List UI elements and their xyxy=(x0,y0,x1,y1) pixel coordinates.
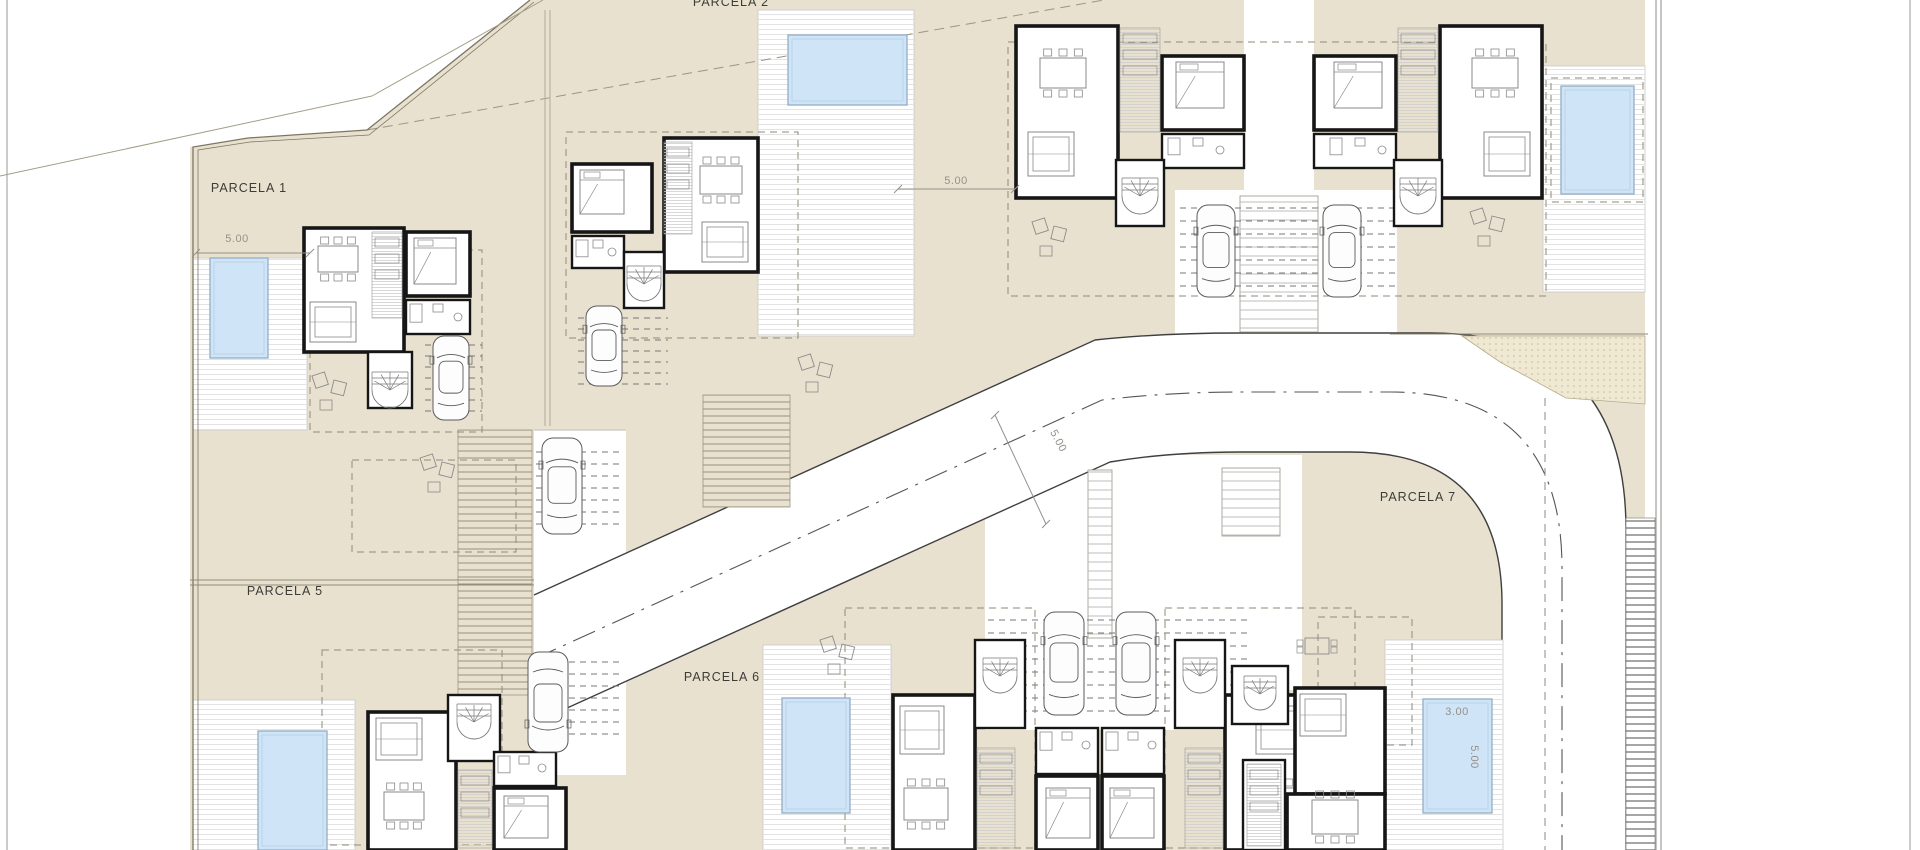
courtyard-top-right xyxy=(1244,0,1314,196)
car-8 xyxy=(1113,612,1159,715)
site-plan-sheet: PARCELA 1PARCELA 2PARCELA 5PARCELA 6PARC… xyxy=(0,0,1920,850)
car-3 xyxy=(1194,205,1238,297)
pool-top-right xyxy=(1561,86,1634,194)
car-1 xyxy=(430,336,472,420)
car-2 xyxy=(583,306,625,386)
site-plan-canvas xyxy=(0,0,1920,850)
parcel-label-1: PARCELA 2 xyxy=(693,0,769,9)
pool-parcela-1 xyxy=(210,258,268,358)
dimension-label-5: 5.00 xyxy=(225,233,248,245)
pool-parcela-6 xyxy=(782,698,850,813)
dimension-label-6: 5.00 xyxy=(944,175,967,187)
car-7 xyxy=(1041,612,1087,715)
parcel-label-4: PARCELA 7 xyxy=(1380,490,1456,504)
parcel-label-2: PARCELA 5 xyxy=(247,584,323,598)
car-6 xyxy=(525,652,571,752)
car-5 xyxy=(539,438,585,534)
car-4 xyxy=(1320,205,1364,297)
dimension-label-9: 5.00 xyxy=(1468,745,1480,768)
parcel-label-0: PARCELA 1 xyxy=(211,181,287,195)
pool-parcela-5 xyxy=(258,731,327,850)
dimension-label-8: 3.00 xyxy=(1445,706,1468,718)
parcel-label-3: PARCELA 6 xyxy=(684,670,760,684)
pool-parcela-2 xyxy=(788,35,907,105)
